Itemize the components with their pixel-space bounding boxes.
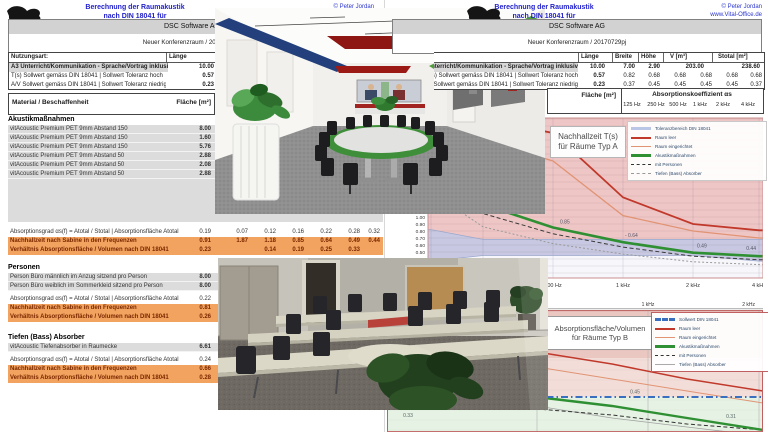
material-name: vitAcoustic Premium PET 9mm Abstand 50 (10, 171, 124, 177)
col-nutzungsart: Nutzungsart: (11, 53, 161, 62)
material-header: Material / Beschaffenheit Fläche [m²] (8, 93, 215, 115)
legend-eingerichtet-line (655, 337, 675, 338)
svg-text:0.60: 0.60 (416, 243, 426, 249)
svg-text:0.80: 0.80 (416, 229, 426, 235)
material-area: 8.00 (199, 125, 211, 134)
legend-raumleer-line (631, 137, 651, 139)
material-area: 2.88 (199, 170, 211, 179)
svg-text:0.44: 0.44 (746, 246, 756, 252)
flaeche-header-label: Fläche [m²] (581, 92, 616, 99)
legend-bass-line (631, 173, 651, 174)
col-stotal: Stotal [m²] (718, 53, 764, 62)
chart2-legend: Sollwert DIN 18041 Raum leer Raum einger… (651, 312, 768, 372)
stat-label: Absorptionsgrad αs(f) = Atotal / Stotal … (10, 229, 179, 235)
stat-label: Nachhallzeit nach Sabine in den Frequenz… (10, 238, 137, 244)
legend-eingerichtet-line (631, 146, 651, 147)
legend-bass-line (655, 364, 675, 365)
flaeche-header-label: Fläche [m²] (176, 99, 211, 106)
material-header-label: Material / Beschaffenheit (12, 99, 89, 106)
svg-text:0.90: 0.90 (416, 222, 426, 228)
chart1-title: Nachhallzeit T(s)für Räume Typ A (550, 126, 626, 158)
legend-personen-line (631, 164, 651, 165)
usage-row-label: A/V Sollwert gemäss DIN 18041 | Sollwert… (11, 81, 166, 90)
usage-table-fragment: Länge Breite Höhe V [m³] Stotal [m²] A3 … (434, 52, 765, 90)
svg-text:1.00: 1.00 (416, 215, 426, 221)
svg-text:0.50: 0.50 (416, 250, 426, 256)
legend-akustik-line (655, 345, 675, 348)
stat-value: 0.91 (199, 237, 211, 246)
chart1-legend: Toleranzbereich DIN 18041 Raum leer Raum… (627, 121, 767, 181)
material-area: 6.61 (199, 343, 211, 352)
company-name: DSC Software AG (393, 20, 761, 34)
usage-av-value: 0.23 (166, 81, 214, 90)
svg-text:- 0.64: - 0.64 (625, 233, 638, 239)
material-area: 1.60 (199, 134, 211, 143)
svg-text:0.45: 0.45 (630, 390, 640, 396)
page-title-line1: Berechnung der Raumakustik (55, 4, 215, 13)
svg-text:0.49: 0.49 (697, 244, 707, 250)
material-name: vitAcoustic Premium PET 9mm Abstand 150 (10, 126, 128, 132)
usage-row-ts-sollwert: T(s) Sollwert gemäss DIN 18041 | Sollwer… (434, 72, 764, 81)
legend-personen-line (655, 355, 675, 356)
material-name: Person Büro männlich im Anzug sitzend pr… (10, 274, 147, 280)
stat-absorptionsgrad: Absorptionsgrad αs(f) = Atotal / Stotal … (8, 228, 383, 237)
stat-verhaeltnis: Verhältnis Absorptionsfläche / Volumen n… (8, 246, 383, 255)
absorption-header-label: Absorptionskoeffizient αs (621, 91, 763, 98)
material-name: vitAcoustic Premium PET 9mm Abstand 50 (10, 162, 124, 168)
copyright-block: © Peter Jordan www.Vital-Office.de (622, 4, 762, 20)
svg-text:0.85: 0.85 (560, 220, 570, 226)
material-area: 2.88 (199, 152, 211, 161)
material-name: vitAcoustic Premium PET 9mm Abstand 150 (10, 144, 128, 150)
svg-text:0.31: 0.31 (726, 414, 736, 420)
legend-toleranz-line (631, 127, 651, 130)
material-name: vitAcoustic Premium PET 9mm Abstand 50 (10, 153, 124, 159)
report-screen: Vital-Office® Berechnung der Raumakustik… (0, 0, 768, 432)
page-right-header-layer: Vital-Office® Berechnung der Raumakustik… (384, 0, 768, 115)
usage-row-label: A3 Unterricht/Kommunikation - Sprache/Vo… (9, 63, 168, 72)
legend-sollwert-line (655, 318, 675, 321)
stat-label: Verhältnis Absorptionsfläche / Volumen n… (10, 247, 169, 253)
svg-text:0.70: 0.70 (416, 236, 426, 242)
material-area: 2.08 (199, 161, 211, 170)
stat-value: 0.23 (199, 246, 211, 255)
usage-row-a3: A3 Unterricht/Kommunikation - Sprache/Vo… (434, 63, 764, 72)
material-area: 8.00 (199, 273, 211, 282)
stat-nachhallzeit: Nachhallzeit nach Sabine in den Frequenz… (8, 237, 383, 246)
legend-raumleer-line (655, 328, 675, 330)
company-band: DSC Software AG Neuer Konferenzraum / 20… (392, 19, 762, 54)
usage-laenge-value: 10.00 (166, 63, 214, 72)
svg-text:1 kHz: 1 kHz (642, 302, 655, 308)
absorption-header: Fläche [m²] Absorptionskoeffizient αs 12… (547, 88, 764, 114)
chart2-title: Absorptionsfläche/Volumenfür Räume Typ B (546, 316, 654, 350)
svg-text:0.33: 0.33 (403, 413, 413, 419)
photo-image (218, 258, 548, 410)
col-volumen: V [m³] (670, 53, 710, 62)
room-reference: Neuer Konferenzraum / 20170729pj (393, 34, 761, 53)
material-name: vitAcoustic Tiefenabsorber in Raumecke (10, 344, 117, 350)
material-name: vitAcoustic Premium PET 9mm Abstand 150 (10, 135, 128, 141)
usage-row-label: T(s) Sollwert gemäss DIN 18041 | Sollwer… (11, 72, 166, 81)
stat-value: 0.19 (199, 228, 211, 237)
material-name: Person Büro weiblich im Sommerkleid sitz… (10, 283, 163, 289)
col-laenge: Länge (581, 53, 611, 62)
col-hoehe: Höhe (641, 53, 665, 62)
legend-akustik-line (631, 154, 651, 157)
col-laenge: Länge (169, 53, 213, 62)
svg-text:1 kHz: 1 kHz (616, 283, 630, 289)
material-area: 5.76 (199, 143, 211, 152)
material-area: 8.00 (199, 282, 211, 291)
usage-ts-value: 0.57 (166, 72, 214, 81)
svg-text:4 kHz: 4 kHz (752, 283, 763, 289)
svg-text:2 kHz: 2 kHz (686, 283, 700, 289)
col-breite: Breite (615, 53, 639, 62)
svg-text:2 kHz: 2 kHz (742, 302, 755, 308)
